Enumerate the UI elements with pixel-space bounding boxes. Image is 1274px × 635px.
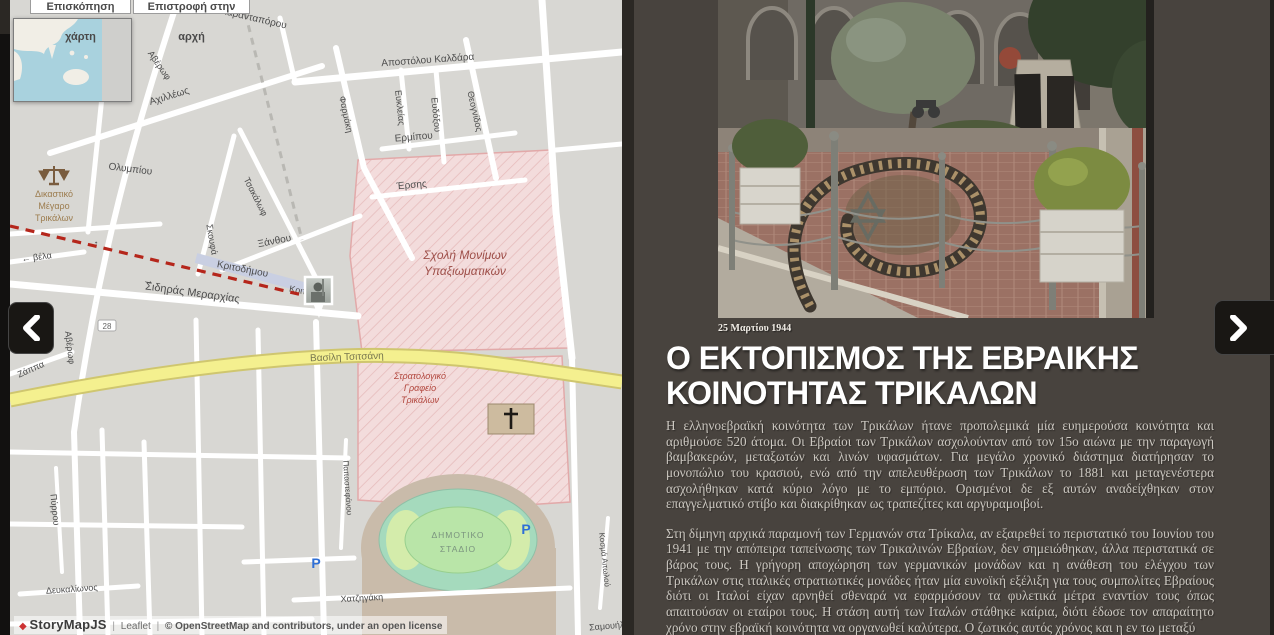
paragraph: Η ελληνοεβραϊκή κοινότητα των Τρικάλων ή… xyxy=(666,418,1214,512)
poi-label: Σχολή Μονίμων xyxy=(422,248,506,262)
landmass-island xyxy=(84,55,88,59)
storymap-logo-icon: ◆ xyxy=(19,621,27,632)
leaflet-link[interactable]: Leaflet xyxy=(121,621,151,632)
poi-label: ΔΗΜΟΤΙΚΟ xyxy=(431,530,484,540)
osm-attribution[interactable]: © OpenStreetMap and contributors, under … xyxy=(165,621,382,632)
street-label: Αχιλλέως xyxy=(148,84,191,108)
planter-left xyxy=(732,119,808,224)
slide-title: Ο ΕΚΤΟΠΙΣΜΟΣ ΤΗΣ ΕΒΡΑΙΚΗΣ ΚΟΙΝΟΤΗΤΑΣ ΤΡΙ… xyxy=(666,341,1222,410)
poi-label: ΣΤΑΔΙΟ xyxy=(440,544,476,554)
open-license-link[interactable]: open license xyxy=(382,621,443,632)
poi-label: Δικαστικό xyxy=(35,189,73,199)
memorial-photo xyxy=(718,0,1154,318)
courthouse-icon xyxy=(39,166,69,184)
map-attribution: ◆ StoryMapJS | Leaflet | © OpenStreetMap… xyxy=(14,616,447,634)
landmass-australia xyxy=(63,69,89,85)
dashed-path xyxy=(242,0,302,240)
storymap-page: ΚαρανταπόρουΑποστόλου ΚαλδάραΕρμίπουΈρση… xyxy=(0,0,1274,635)
planter-right xyxy=(1034,147,1130,282)
poi-label: P xyxy=(521,521,530,537)
slide-panel: 25 Μαρτίου 1944 Ο ΕΚΤΟΠΙΣΜΟΣ ΤΗΣ ΕΒΡΑΙΚΗ… xyxy=(634,0,1274,635)
poi-label: Τρικάλων xyxy=(401,395,439,405)
street-label: Πύρρου xyxy=(48,493,61,526)
street-label: Δευκαλίωνος xyxy=(46,582,99,596)
street-label: Ζάππα xyxy=(16,359,46,380)
poi-label: Στρατολογικό xyxy=(393,371,446,381)
poi-label: P xyxy=(311,555,320,571)
street-label: Αβέρωφ xyxy=(63,331,77,365)
previous-slide-button[interactable] xyxy=(8,302,54,354)
storymapjs-link[interactable]: StoryMapJS xyxy=(29,617,106,632)
street-label: → xyxy=(142,274,155,287)
street-label: ← βέλα xyxy=(21,250,52,264)
street-label: Σαμουήλ xyxy=(589,619,622,632)
church-icon xyxy=(488,404,534,434)
poi-label: Τρικάλων xyxy=(35,213,74,223)
map[interactable]: ΚαρανταπόρουΑποστόλου ΚαλδάραΕρμίπουΈρση… xyxy=(10,0,622,635)
return-to-start-button[interactable]: Επιστροφή στην αρχή xyxy=(133,0,250,14)
poi-label: Υπαξιωματικών xyxy=(424,264,506,278)
stadium xyxy=(361,474,556,635)
map-overview-button[interactable]: Επισκόπηση χάρτη xyxy=(30,0,131,14)
poi-label: 28 xyxy=(103,322,112,331)
chevron-left-icon xyxy=(21,315,41,341)
paragraph: Στη δίμηνη αρχικά παραμονή των Γερμανών … xyxy=(666,526,1214,635)
next-slide-button[interactable] xyxy=(1214,300,1274,355)
poi-label: Γραφείο xyxy=(404,383,436,393)
photo-caption: 25 Μαρτίου 1944 xyxy=(718,323,791,334)
chevron-right-icon xyxy=(1229,315,1249,341)
street-label: Κοσμά Αιτωλού xyxy=(597,532,612,587)
poi-label: Μέγαρο xyxy=(38,201,69,211)
landmass-island xyxy=(70,51,75,56)
slide-body: Η ελληνοεβραϊκή κοινότητα των Τρικάλων ή… xyxy=(666,418,1214,635)
